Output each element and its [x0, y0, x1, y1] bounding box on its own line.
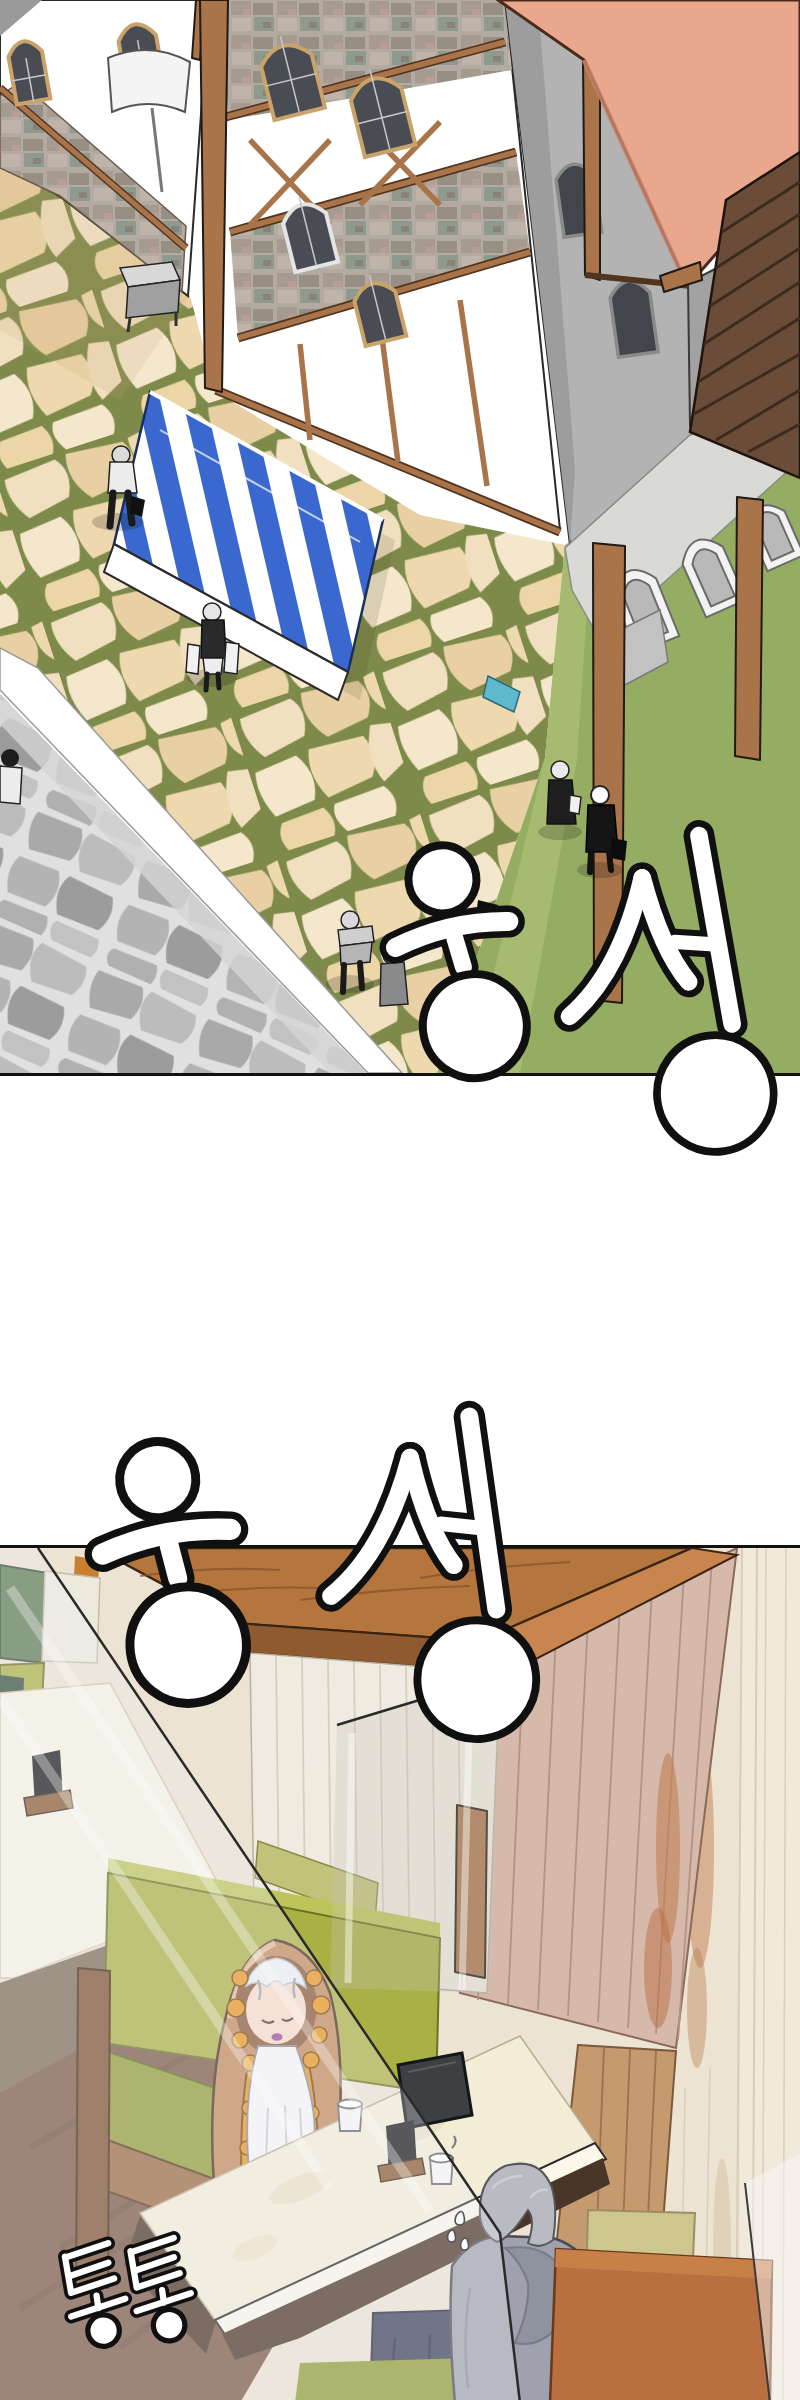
street-scene-art — [0, 0, 800, 1073]
corner-post — [200, 0, 228, 392]
lawn-post — [735, 497, 763, 760]
pedestrian — [0, 749, 22, 804]
panel-street — [0, 0, 800, 1076]
market-tarp — [108, 50, 190, 112]
panel-tavern — [0, 1545, 800, 2400]
tavern-scene-art — [0, 1548, 800, 2400]
webtoon-page — [0, 0, 800, 2400]
lawn-post — [593, 543, 625, 1003]
